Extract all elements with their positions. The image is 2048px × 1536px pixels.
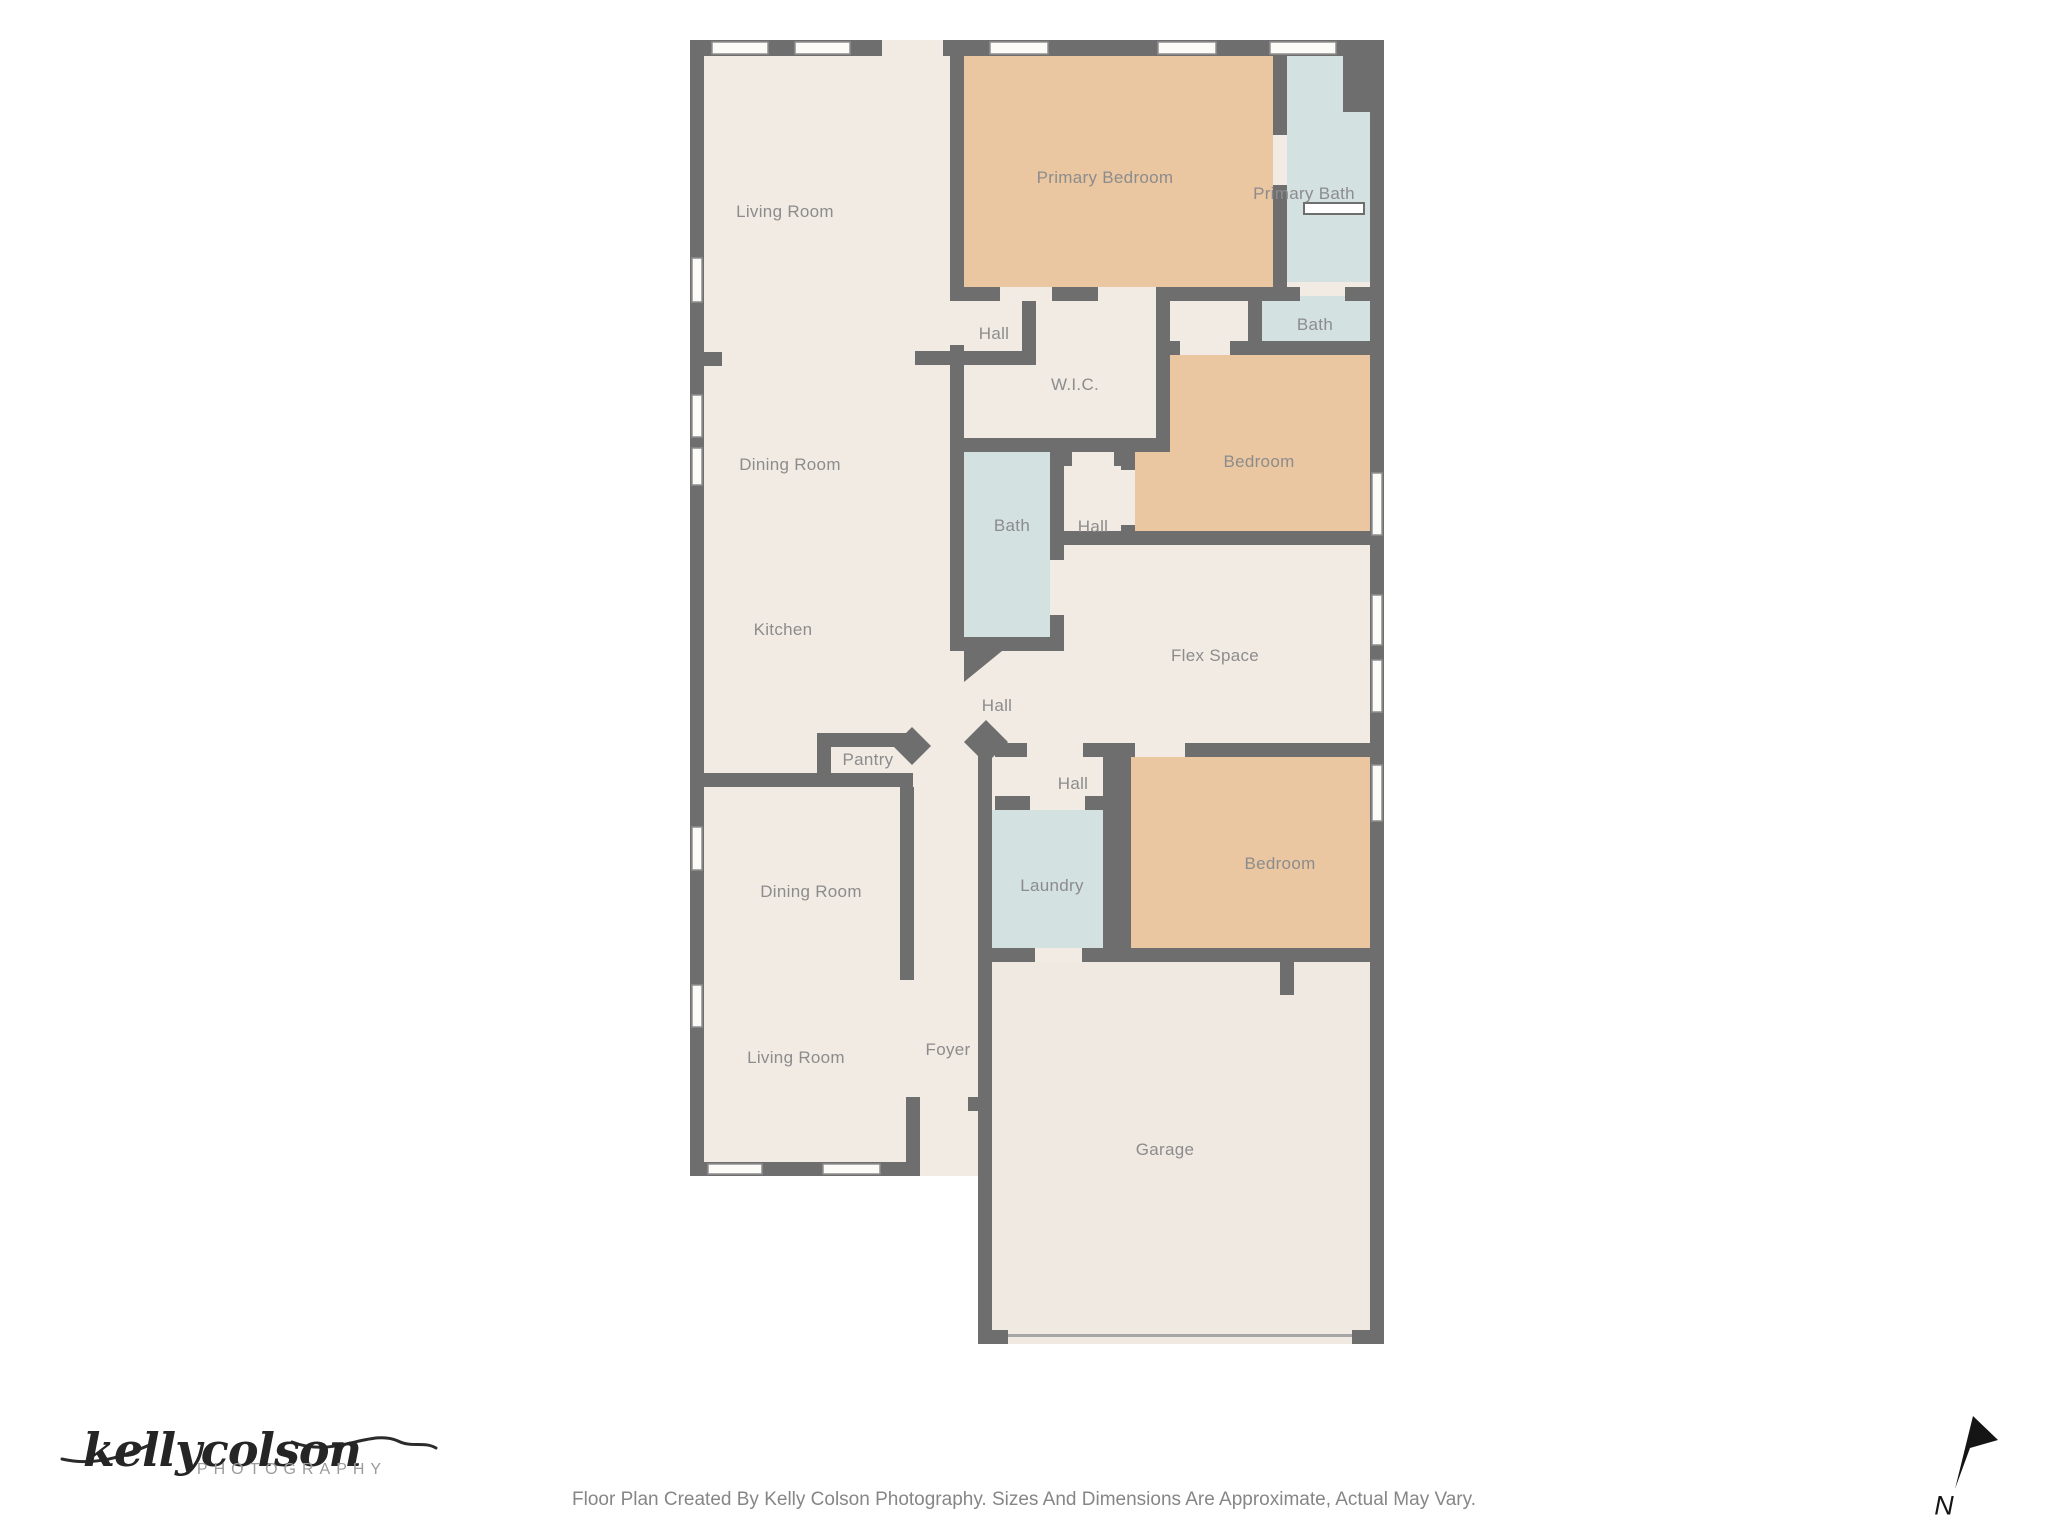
room-label-hall-center: Hall: [982, 696, 1013, 716]
north-arrow-icon: [1955, 1416, 1998, 1489]
window-marker: [1372, 660, 1382, 712]
window-marker: [1372, 473, 1382, 535]
bath-counter-marker: [1304, 203, 1364, 214]
window-marker: [1372, 595, 1382, 645]
window-marker: [795, 42, 850, 54]
logo-subtitle: PHOTOGRAPHY: [197, 1461, 387, 1479]
window-marker: [712, 42, 768, 54]
window-marker: [692, 827, 702, 870]
room-label-dining-room-lower: Dining Room: [760, 882, 862, 902]
room-label-flex-space: Flex Space: [1171, 646, 1259, 666]
room-label-wic: W.I.C.: [1051, 375, 1099, 395]
room-label-hall-middle: Hall: [1078, 517, 1109, 537]
room-label-hall-upper: Hall: [979, 324, 1010, 344]
room-fill-bedroom-middle-ext: [1135, 452, 1170, 531]
room-label-foyer: Foyer: [926, 1040, 971, 1060]
room-label-bedroom-middle: Bedroom: [1223, 452, 1294, 472]
room-label-primary-bath: Primary Bath: [1253, 184, 1355, 204]
window-marker: [1158, 42, 1216, 54]
room-label-laundry: Laundry: [1020, 876, 1084, 896]
floor-plan-page: Living Room Primary Bedroom Primary Bath…: [0, 0, 2048, 1536]
room-fill-bath-middle: [964, 452, 1050, 637]
garage-door-line: [1008, 1334, 1352, 1337]
window-marker: [1372, 765, 1382, 821]
room-label-pantry: Pantry: [843, 750, 894, 770]
north-label: N: [1934, 1491, 1954, 1522]
footer-disclaimer: Floor Plan Created By Kelly Colson Photo…: [572, 1489, 1476, 1511]
room-label-primary-bedroom: Primary Bedroom: [1037, 168, 1174, 188]
window-marker: [1270, 42, 1336, 54]
window-marker: [823, 1164, 880, 1174]
window-marker: [708, 1164, 762, 1174]
room-label-kitchen: Kitchen: [754, 620, 813, 640]
window-marker: [692, 258, 702, 302]
room-label-living-room-lower: Living Room: [747, 1048, 845, 1068]
floor-plan-canvas: [0, 0, 2048, 1536]
window-marker: [692, 395, 702, 437]
room-label-living-room-upper: Living Room: [736, 202, 834, 222]
room-label-dining-room-upper: Dining Room: [739, 455, 841, 475]
window-marker: [692, 448, 702, 485]
window-marker: [990, 42, 1048, 54]
room-label-garage: Garage: [1136, 1140, 1195, 1160]
room-label-bath-middle: Bath: [994, 516, 1030, 536]
room-label-bedroom-lower: Bedroom: [1244, 854, 1315, 874]
room-label-bath-upper: Bath: [1297, 315, 1333, 335]
room-fill-bedroom-lower: [1131, 757, 1370, 948]
window-marker: [692, 985, 702, 1027]
floor-lower-left: [690, 962, 1012, 1176]
room-fill-bedroom-middle: [1170, 355, 1370, 531]
room-label-hall-lower: Hall: [1058, 774, 1089, 794]
